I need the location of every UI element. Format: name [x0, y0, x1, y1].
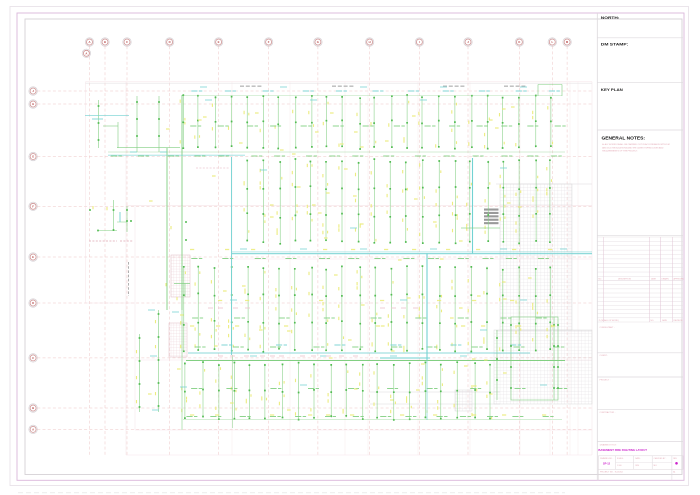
- svg-text:DM STAMP:: DM STAMP:: [601, 41, 629, 46]
- svg-text:A: A: [88, 40, 90, 44]
- svg-text:SCALE :: SCALE :: [617, 457, 624, 460]
- svg-text:2024: 2024: [635, 465, 639, 467]
- svg-text:P (SCALE OF WORK): P (SCALE OF WORK): [599, 319, 619, 322]
- svg-text:F: F: [268, 40, 270, 44]
- svg-text:A1: A1: [673, 470, 675, 473]
- svg-text:E: E: [32, 255, 34, 259]
- svg-text:SP-12: SP-12: [603, 462, 611, 466]
- svg-text:1:100: 1:100: [617, 465, 622, 467]
- svg-text:KEY PLAN: KEY PLAN: [601, 87, 623, 92]
- svg-text:L: L: [551, 40, 553, 44]
- svg-text:NORTH:: NORTH:: [601, 15, 620, 20]
- svg-text:H: H: [32, 102, 34, 106]
- svg-text:C: C: [32, 356, 34, 360]
- svg-text:DRAWING NO. :: DRAWING NO. :: [600, 457, 614, 460]
- svg-text:DRAWN: DRAWN: [662, 277, 670, 280]
- svg-text:K: K: [518, 40, 520, 44]
- svg-text:A: A: [32, 427, 34, 431]
- svg-text:PROJECT :: PROJECT :: [600, 380, 611, 382]
- svg-text:CHECKED BY :: CHECKED BY :: [654, 458, 667, 460]
- svg-text:D: D: [169, 40, 171, 44]
- svg-text:DATE: DATE: [651, 277, 657, 280]
- svg-text:GENERAL NOTES:: GENERAL NOTES:: [602, 135, 646, 140]
- svg-text:NO.: NO.: [598, 278, 602, 280]
- svg-text:AND DCD REGULATIONS AND THE LA: AND DCD REGULATIONS AND THE LATEST NFPA …: [602, 146, 664, 149]
- svg-text:A. ALL WORKS SHALL BE CARRIED: A. ALL WORKS SHALL BE CARRIED OUT IN ACC…: [602, 143, 670, 146]
- svg-text:DATE :: DATE :: [635, 457, 641, 460]
- svg-text:A: A: [85, 51, 87, 55]
- svg-text:H: H: [369, 40, 371, 44]
- svg-text:CLIENT :: CLIENT :: [600, 355, 609, 357]
- svg-text:BASEMENT FIRE FIGHTING LAYOUT: BASEMENT FIRE FIGHTING LAYOUT: [598, 448, 647, 452]
- svg-text:DRAWING TITLE :: DRAWING TITLE :: [600, 444, 618, 447]
- svg-text:F: F: [32, 204, 34, 208]
- svg-text:E: E: [218, 40, 220, 44]
- svg-text:CONSULTANT :: CONSULTANT :: [600, 326, 615, 329]
- svg-text:B: B: [104, 40, 106, 44]
- svg-text:G: G: [32, 155, 34, 159]
- svg-text:PROJECT NO. : E-21054: PROJECT NO. : E-21054: [600, 471, 624, 473]
- svg-text:APPROVED: APPROVED: [674, 277, 685, 280]
- svg-text:REQUIREMENTS OF THE PROJECT.: REQUIREMENTS OF THE PROJECT.: [602, 150, 638, 152]
- svg-text:DESCRIPTION: DESCRIPTION: [618, 278, 632, 280]
- svg-text:REVISION: REVISION: [674, 320, 684, 322]
- svg-text:CONTRACTOR :: CONTRACTOR :: [600, 411, 616, 414]
- svg-text:DATE: DATE: [662, 319, 668, 322]
- svg-text:G: G: [317, 40, 319, 44]
- svg-text:D: D: [32, 301, 34, 305]
- svg-text:C: C: [126, 40, 128, 44]
- svg-text:B: B: [32, 406, 34, 410]
- svg-text:NO.: NO.: [651, 320, 655, 322]
